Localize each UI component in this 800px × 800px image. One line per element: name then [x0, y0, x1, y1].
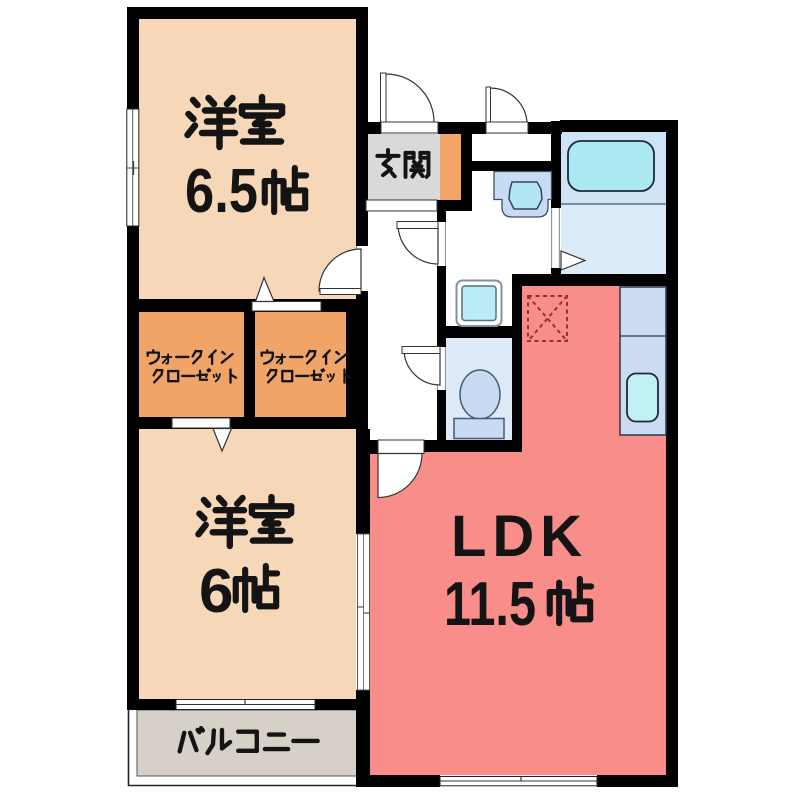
svg-text:6.5: 6.5	[185, 157, 258, 226]
svg-text:11.5: 11.5	[444, 570, 536, 639]
svg-text:6: 6	[199, 557, 233, 626]
svg-text:LDK: LDK	[451, 504, 582, 569]
